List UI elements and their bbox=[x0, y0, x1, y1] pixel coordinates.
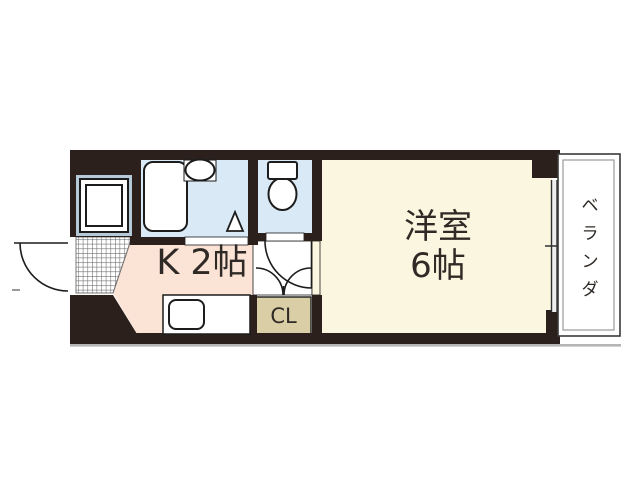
entrance-door bbox=[12, 243, 68, 291]
washing-machine-space bbox=[76, 175, 132, 236]
western-room-label: 洋室 6帖 bbox=[360, 208, 516, 286]
wall-bottom bbox=[70, 333, 560, 344]
toilet bbox=[268, 162, 297, 210]
toilet-door-sill bbox=[266, 233, 304, 241]
wash-basin bbox=[184, 160, 216, 182]
bathtub bbox=[144, 162, 187, 231]
kitchen-sink bbox=[169, 300, 204, 329]
wall-top-right-step bbox=[532, 150, 560, 178]
plan-bottom-shadow-line bbox=[70, 344, 621, 347]
closet-label: CL bbox=[256, 303, 311, 329]
western-room-label-size: 6帖 bbox=[360, 247, 516, 286]
room-doorway bbox=[312, 241, 320, 295]
kitchen-counter bbox=[163, 295, 250, 334]
western-room-label-name: 洋室 bbox=[360, 208, 516, 247]
wall-toilet-nub-left bbox=[248, 233, 266, 241]
floorplan-canvas: K 2帖 洋室 6帖 CL ベランダ bbox=[0, 0, 640, 480]
kitchen-label: K 2帖 bbox=[122, 244, 282, 282]
veranda-label: ベランダ bbox=[576, 192, 604, 304]
wall-toilet-right bbox=[312, 150, 322, 241]
wall-bath-toilet bbox=[248, 152, 258, 245]
floorplan-graphic bbox=[0, 0, 640, 480]
